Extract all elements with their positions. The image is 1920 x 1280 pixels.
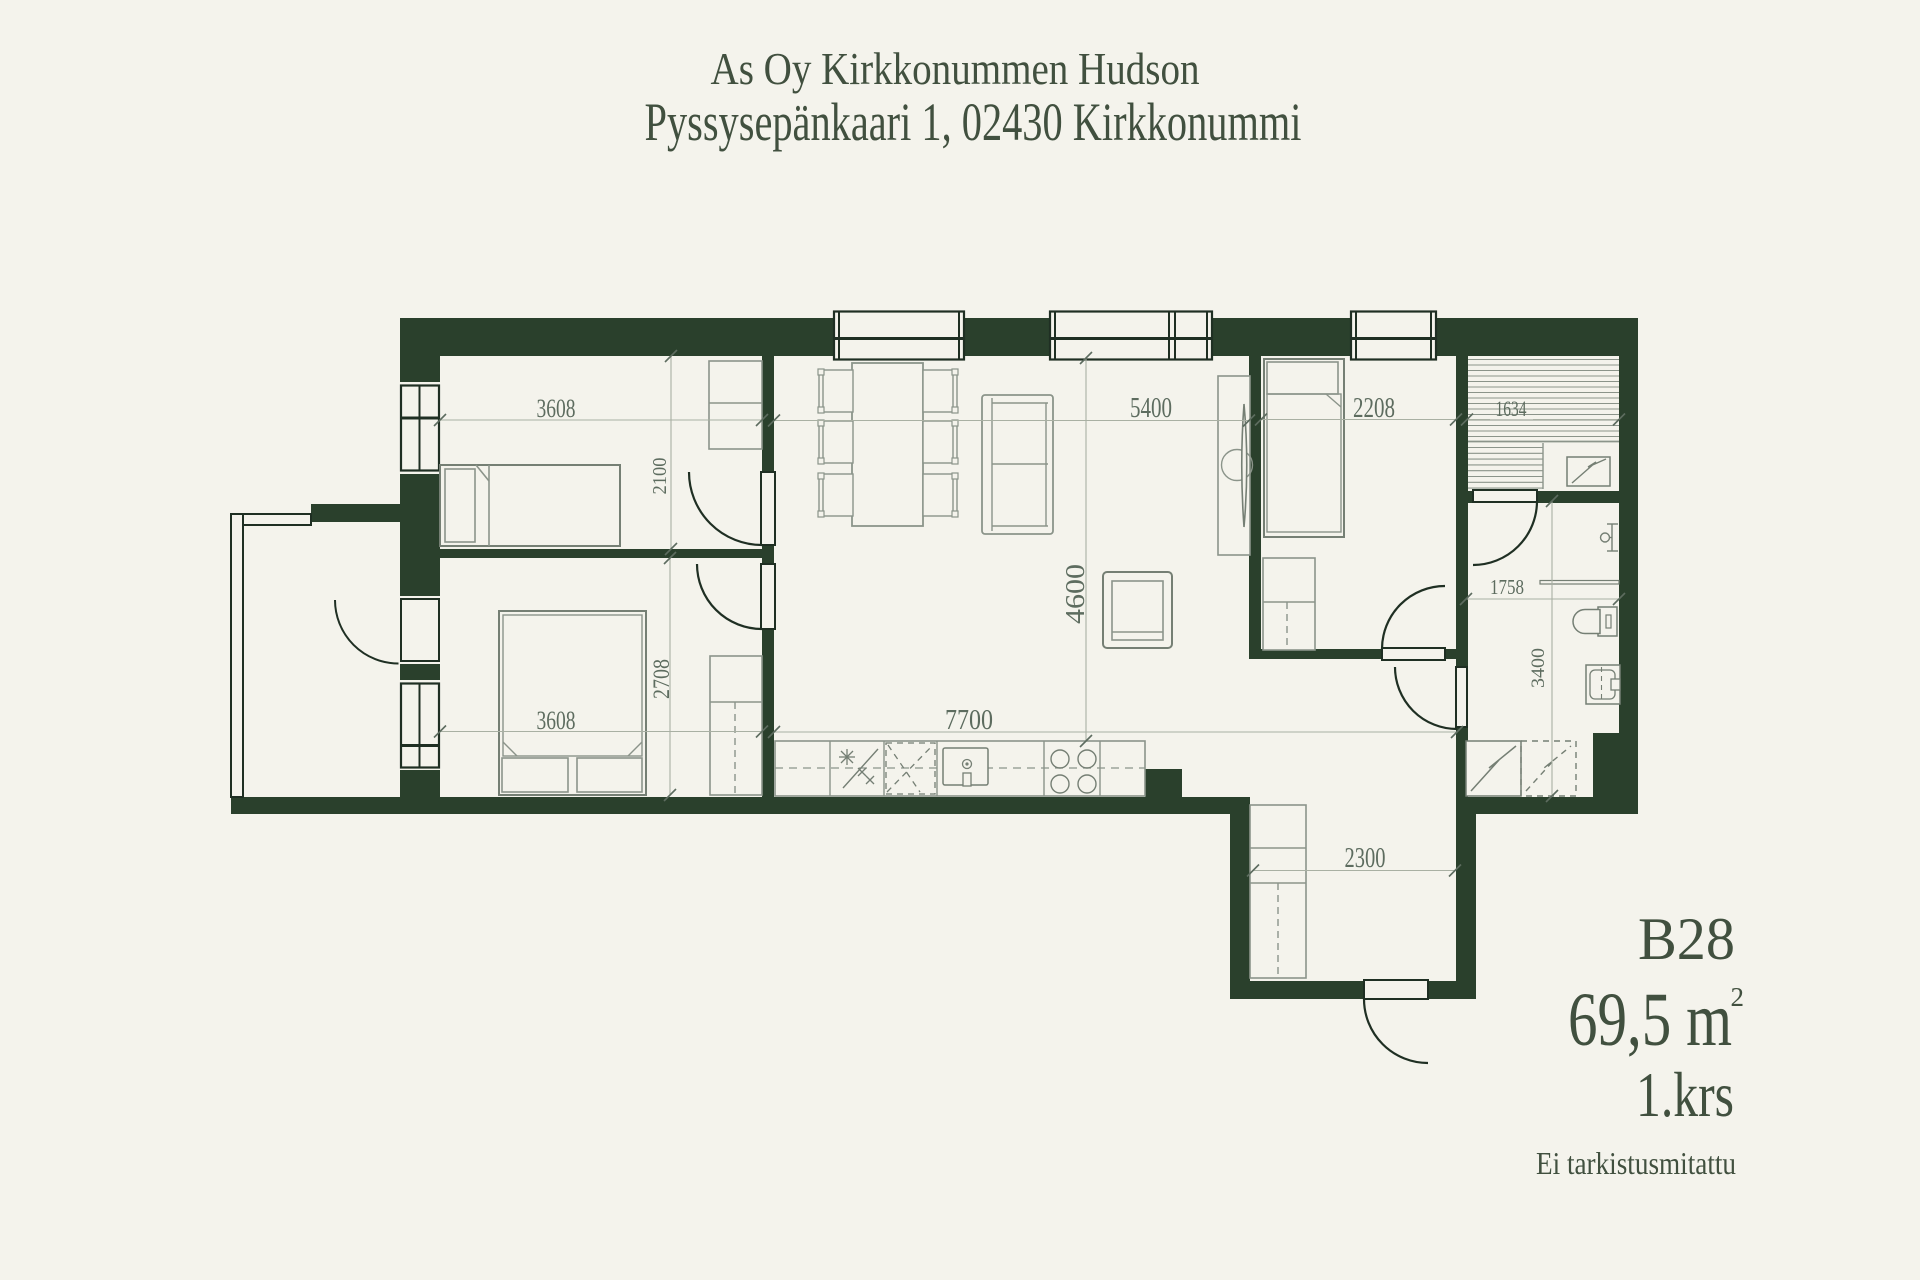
svg-text:3400: 3400 bbox=[1528, 648, 1549, 688]
svg-text:3608: 3608 bbox=[537, 706, 576, 735]
svg-text:As Oy Kirkkonummen Hudson: As Oy Kirkkonummen Hudson bbox=[711, 43, 1200, 94]
svg-text:Ei tarkistusmitattu: Ei tarkistusmitattu bbox=[1536, 1145, 1736, 1181]
svg-text:1634: 1634 bbox=[1496, 396, 1527, 421]
svg-text:4600: 4600 bbox=[1060, 564, 1090, 624]
svg-text:2300: 2300 bbox=[1345, 843, 1386, 874]
svg-text:7700: 7700 bbox=[945, 705, 993, 736]
svg-text:2708: 2708 bbox=[649, 659, 674, 699]
svg-text:5400: 5400 bbox=[1130, 393, 1172, 424]
svg-text:3608: 3608 bbox=[537, 394, 576, 423]
svg-text:2208: 2208 bbox=[1353, 393, 1395, 424]
svg-text:B28: B28 bbox=[1638, 906, 1735, 972]
svg-text:2100: 2100 bbox=[649, 458, 671, 495]
svg-text:Pyssysepänkaari 1, 02430 Kirkk: Pyssysepänkaari 1, 02430 Kirkkonummi bbox=[645, 92, 1302, 152]
svg-text:1.krs: 1.krs bbox=[1636, 1059, 1734, 1130]
svg-text:2: 2 bbox=[1731, 982, 1745, 1012]
svg-text:1758: 1758 bbox=[1490, 575, 1524, 599]
svg-text:69,5 m: 69,5 m bbox=[1568, 978, 1732, 1062]
